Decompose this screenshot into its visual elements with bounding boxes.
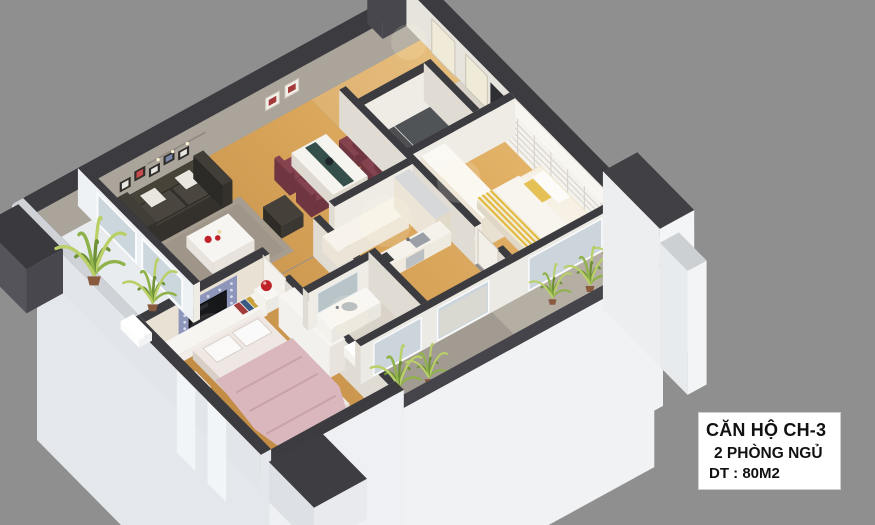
- wallpaper-motif: [207, 295, 210, 298]
- facet: [311, 193, 316, 218]
- spotlight: [186, 142, 189, 145]
- spotlight: [171, 150, 174, 153]
- glow: [437, 159, 481, 203]
- balcony-plant-pot: [87, 276, 101, 285]
- wallpaper-motif: [230, 289, 233, 292]
- red-lamp: [261, 280, 272, 291]
- wallpaper-motif: [218, 289, 221, 292]
- balcony-plant-pot: [147, 304, 157, 311]
- floorplan-stage: CĂN HỘ CH-3 2 PHÒNG NGỦ DT : 80M2: [0, 0, 875, 525]
- facet: [355, 341, 361, 385]
- apartment-info-box: CĂN HỘ CH-3 2 PHÒNG NGỦ DT : 80M2: [698, 412, 841, 490]
- lamp-highlight: [263, 281, 266, 284]
- apartment-name: CĂN HỘ CH-3: [706, 419, 840, 442]
- wallpaper-motif: [230, 302, 233, 305]
- wallpaper-motif: [183, 327, 186, 330]
- vase: [325, 157, 333, 165]
- faucet: [406, 238, 410, 242]
- glow: [391, 24, 427, 60]
- decor: [217, 230, 221, 234]
- loggia-plant-pot: [548, 299, 556, 304]
- wallpaper-motif: [183, 321, 186, 324]
- bedroom-count: 2 PHÒNG NGỦ: [714, 444, 840, 463]
- facet: [290, 171, 295, 196]
- wallpaper-motif: [230, 282, 233, 285]
- glow: [360, 195, 412, 247]
- facet: [688, 261, 707, 395]
- facet: [193, 281, 200, 323]
- wallpaper-motif: [230, 295, 233, 298]
- flowers: [205, 236, 212, 243]
- flowers: [215, 235, 221, 241]
- glow: [328, 295, 368, 335]
- facet: [303, 288, 309, 332]
- spotlight: [156, 158, 159, 161]
- area-label: DT : 80M2: [709, 465, 840, 484]
